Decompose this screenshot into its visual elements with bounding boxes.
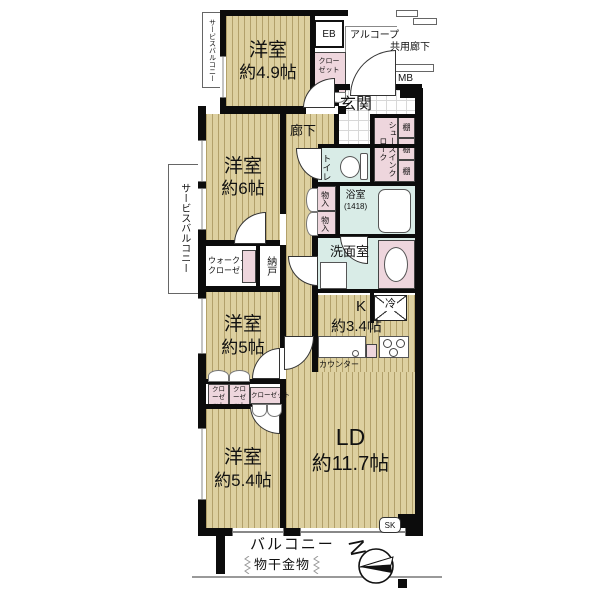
bath-name: 浴室 <box>344 190 367 202</box>
toilet-tank-icon <box>360 153 368 180</box>
storage-label: 物入 <box>320 187 329 210</box>
wall-segment <box>370 114 374 186</box>
floor-plan: 洋室 約4.9帖 洋室 約6帖 洋室 約5帖 洋室 約5.4帖 LD 約11.7… <box>0 0 600 600</box>
room-name: 洋室 <box>249 39 287 63</box>
counter-label: カウンター <box>319 360 359 369</box>
doorway-gap <box>280 214 286 245</box>
eb-box: EB <box>314 20 344 48</box>
shelf: 棚 <box>398 138 415 160</box>
folding-door-icon <box>229 370 250 382</box>
room-name: 洋室 <box>224 446 262 470</box>
window-icon <box>220 56 226 98</box>
service-balcony-label: サービスバルコニー <box>178 167 190 289</box>
wall-segment <box>256 246 260 286</box>
sliding-door-icon <box>232 528 284 536</box>
window-icon <box>198 140 206 182</box>
room-size: 約4.9帖 <box>239 62 297 83</box>
nando: 納戸 <box>260 246 280 286</box>
shoes-in-cloak-label: シューズインクローク <box>375 119 397 179</box>
room-size: 約5.4帖 <box>214 470 272 491</box>
genkan-label: 玄関 <box>340 96 372 114</box>
kitchen-sink-icon <box>318 336 366 358</box>
sink-drain-icon <box>352 350 359 357</box>
mb-label: MB <box>398 73 413 85</box>
folding-door-icon <box>306 212 318 236</box>
folding-door-icon <box>208 370 229 382</box>
toilet-bowl-icon <box>340 156 360 178</box>
room-size: 約6帖 <box>221 178 264 199</box>
alcove-label: アルコープ <box>350 30 399 42</box>
room-name: 洋室 <box>224 155 262 179</box>
mb-box <box>392 64 434 72</box>
burner-icon <box>383 339 392 348</box>
service-balcony-top: サービスバルコニー <box>202 12 221 88</box>
shelf: 棚 <box>398 160 415 182</box>
wall-segment <box>336 186 340 238</box>
balcony-label: バルコニー <box>250 536 335 553</box>
wall-segment <box>374 114 416 118</box>
storage-label: 物入 <box>320 212 329 235</box>
burner-icon <box>389 348 398 357</box>
wall-segment <box>280 114 286 528</box>
room-size: 約5帖 <box>221 337 264 358</box>
burner-icon <box>396 339 405 348</box>
wall-segment <box>206 286 282 292</box>
wic-door <box>242 250 256 283</box>
zigzag-icon <box>244 556 251 574</box>
window-icon <box>198 298 206 354</box>
folding-door-icon <box>252 404 267 417</box>
washing-machine-icon <box>320 262 347 289</box>
wall-segment <box>415 88 423 536</box>
wall-segment <box>318 182 416 186</box>
room-yoshitsu-4-9: 洋室 約4.9帖 <box>226 16 310 106</box>
shelf: 棚 <box>398 116 415 138</box>
wall-segment <box>318 289 416 293</box>
wall-segment <box>400 88 423 98</box>
zigzag-icon <box>313 556 320 574</box>
common-corridor-label: 共用廊下 <box>390 42 430 54</box>
door-arc-entrance <box>350 50 396 96</box>
balcony-edge-line <box>192 576 442 578</box>
washroom-label: 洗面室 <box>330 245 369 260</box>
corridor-step-line <box>413 18 437 25</box>
service-balcony-left: サービスバルコニー <box>168 164 200 294</box>
kitchen-size: 約3.4帖 <box>331 318 382 335</box>
bath-size: (1418) <box>344 202 367 211</box>
drying-fixture: 物干金物 <box>244 556 320 574</box>
wash-basin-icon <box>384 247 408 282</box>
closet-wide: クローゼット <box>250 387 282 404</box>
closet: クローゼット <box>229 384 250 405</box>
room-name: LD <box>336 423 365 452</box>
kitchen-name: K <box>356 298 366 315</box>
wall-segment <box>334 84 350 90</box>
room-name: 洋室 <box>224 313 262 337</box>
wall-segment <box>318 144 416 148</box>
compass-icon: N <box>334 536 402 592</box>
corridor-step-line <box>396 10 418 17</box>
service-balcony-label: サービスバルコニー <box>207 14 215 86</box>
corridor-label: 廊下 <box>290 124 316 139</box>
nando-label: 納戸 <box>264 248 276 284</box>
fridge-label: 冷 <box>384 298 397 311</box>
alcove-line <box>345 26 397 27</box>
bathtub-icon <box>378 189 411 233</box>
room-ld: LD 約11.7帖 <box>286 372 415 528</box>
bath-label: 浴室 (1418) <box>344 190 367 211</box>
folding-door-icon <box>267 404 282 417</box>
sk-box: SK <box>379 517 401 533</box>
window-icon <box>198 428 206 500</box>
room-size: 約11.7帖 <box>312 452 389 477</box>
counter-gap <box>366 344 377 358</box>
folding-door-icon <box>306 188 318 212</box>
drying-fixture-label: 物干金物 <box>254 558 310 573</box>
wall-segment <box>216 534 225 574</box>
closet: クローゼット <box>208 384 229 405</box>
wall-segment <box>220 10 348 16</box>
toilet-label: トイレ <box>321 151 331 183</box>
window-icon <box>198 188 206 230</box>
